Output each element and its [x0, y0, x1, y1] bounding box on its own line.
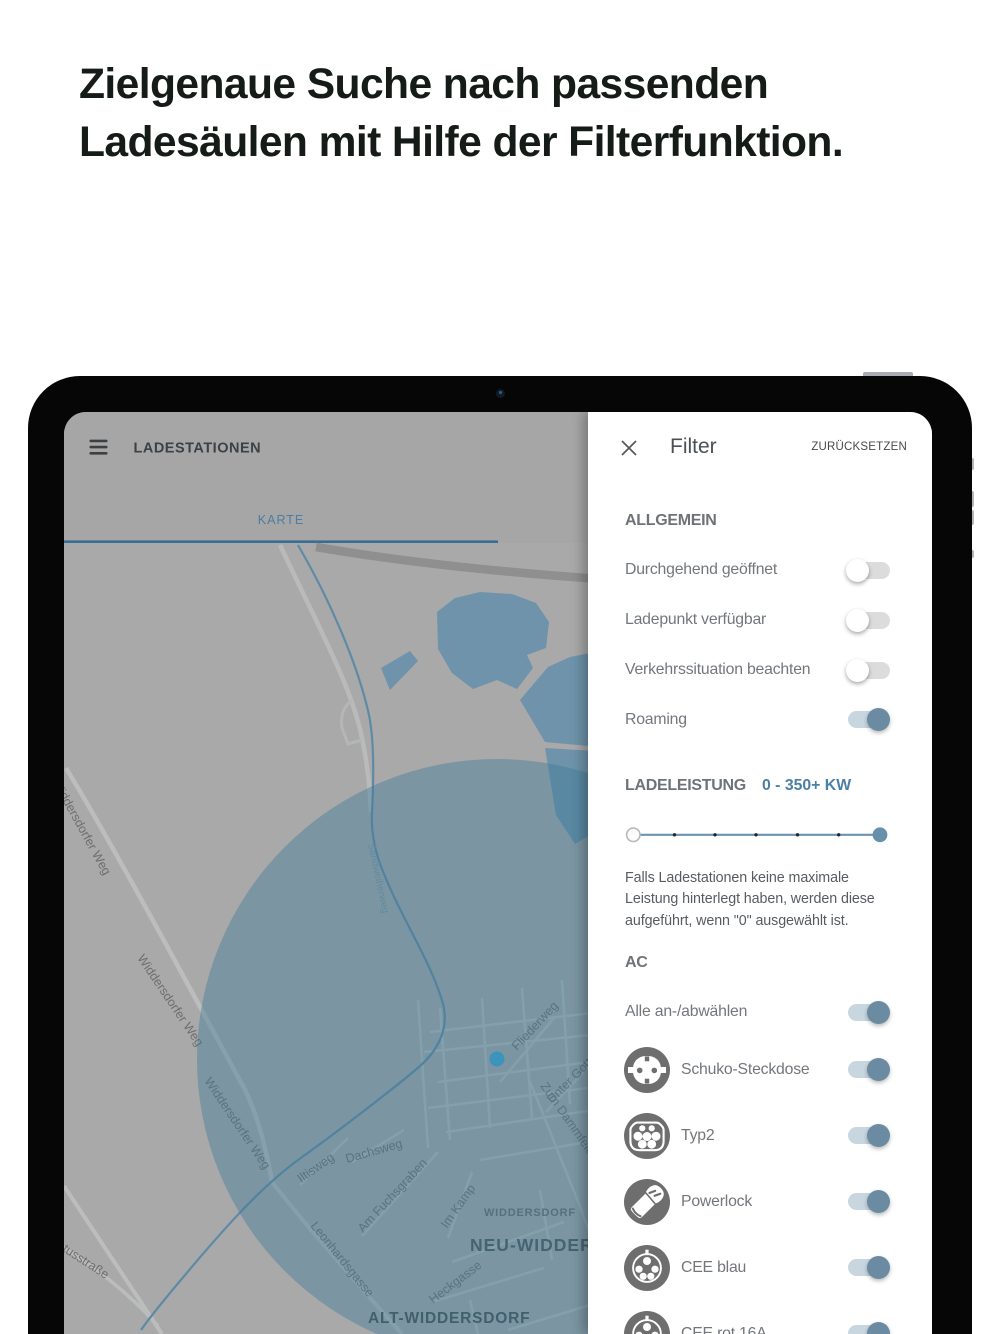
svg-text:KARTE: KARTE [258, 513, 304, 527]
svg-text:LADESTATIONEN: LADESTATIONEN [134, 441, 262, 457]
